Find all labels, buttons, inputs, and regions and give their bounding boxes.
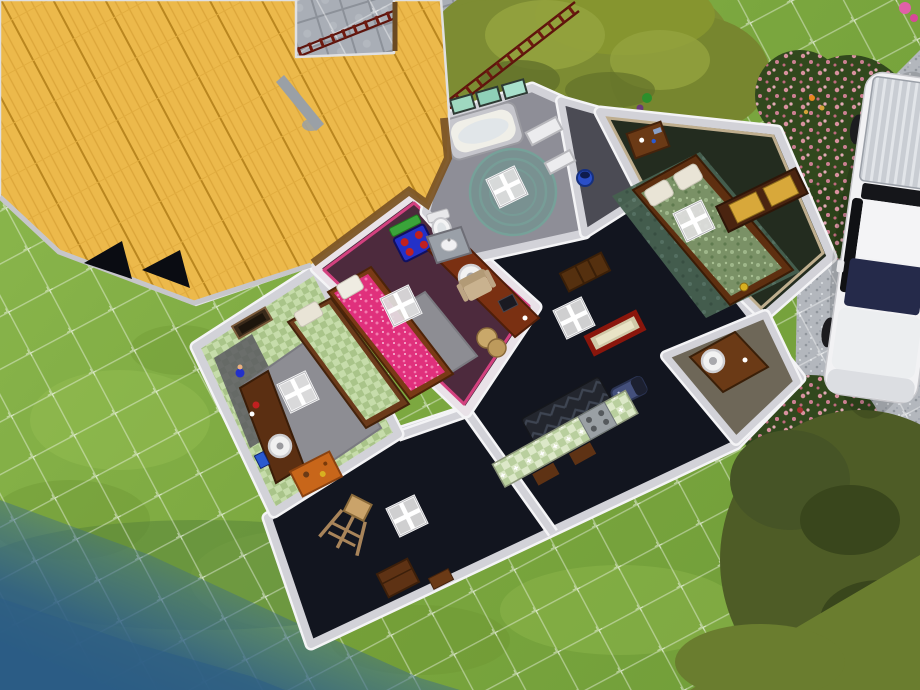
- car-roof: [855, 199, 920, 266]
- lot-scene: [0, 0, 920, 690]
- trash-bin[interactable]: [577, 170, 593, 186]
- game-viewport: [0, 0, 920, 690]
- car-hood: [831, 307, 920, 380]
- office-chair[interactable]: [702, 350, 724, 372]
- chair-green-room[interactable]: [269, 435, 291, 457]
- toy-yellow[interactable]: [740, 283, 748, 291]
